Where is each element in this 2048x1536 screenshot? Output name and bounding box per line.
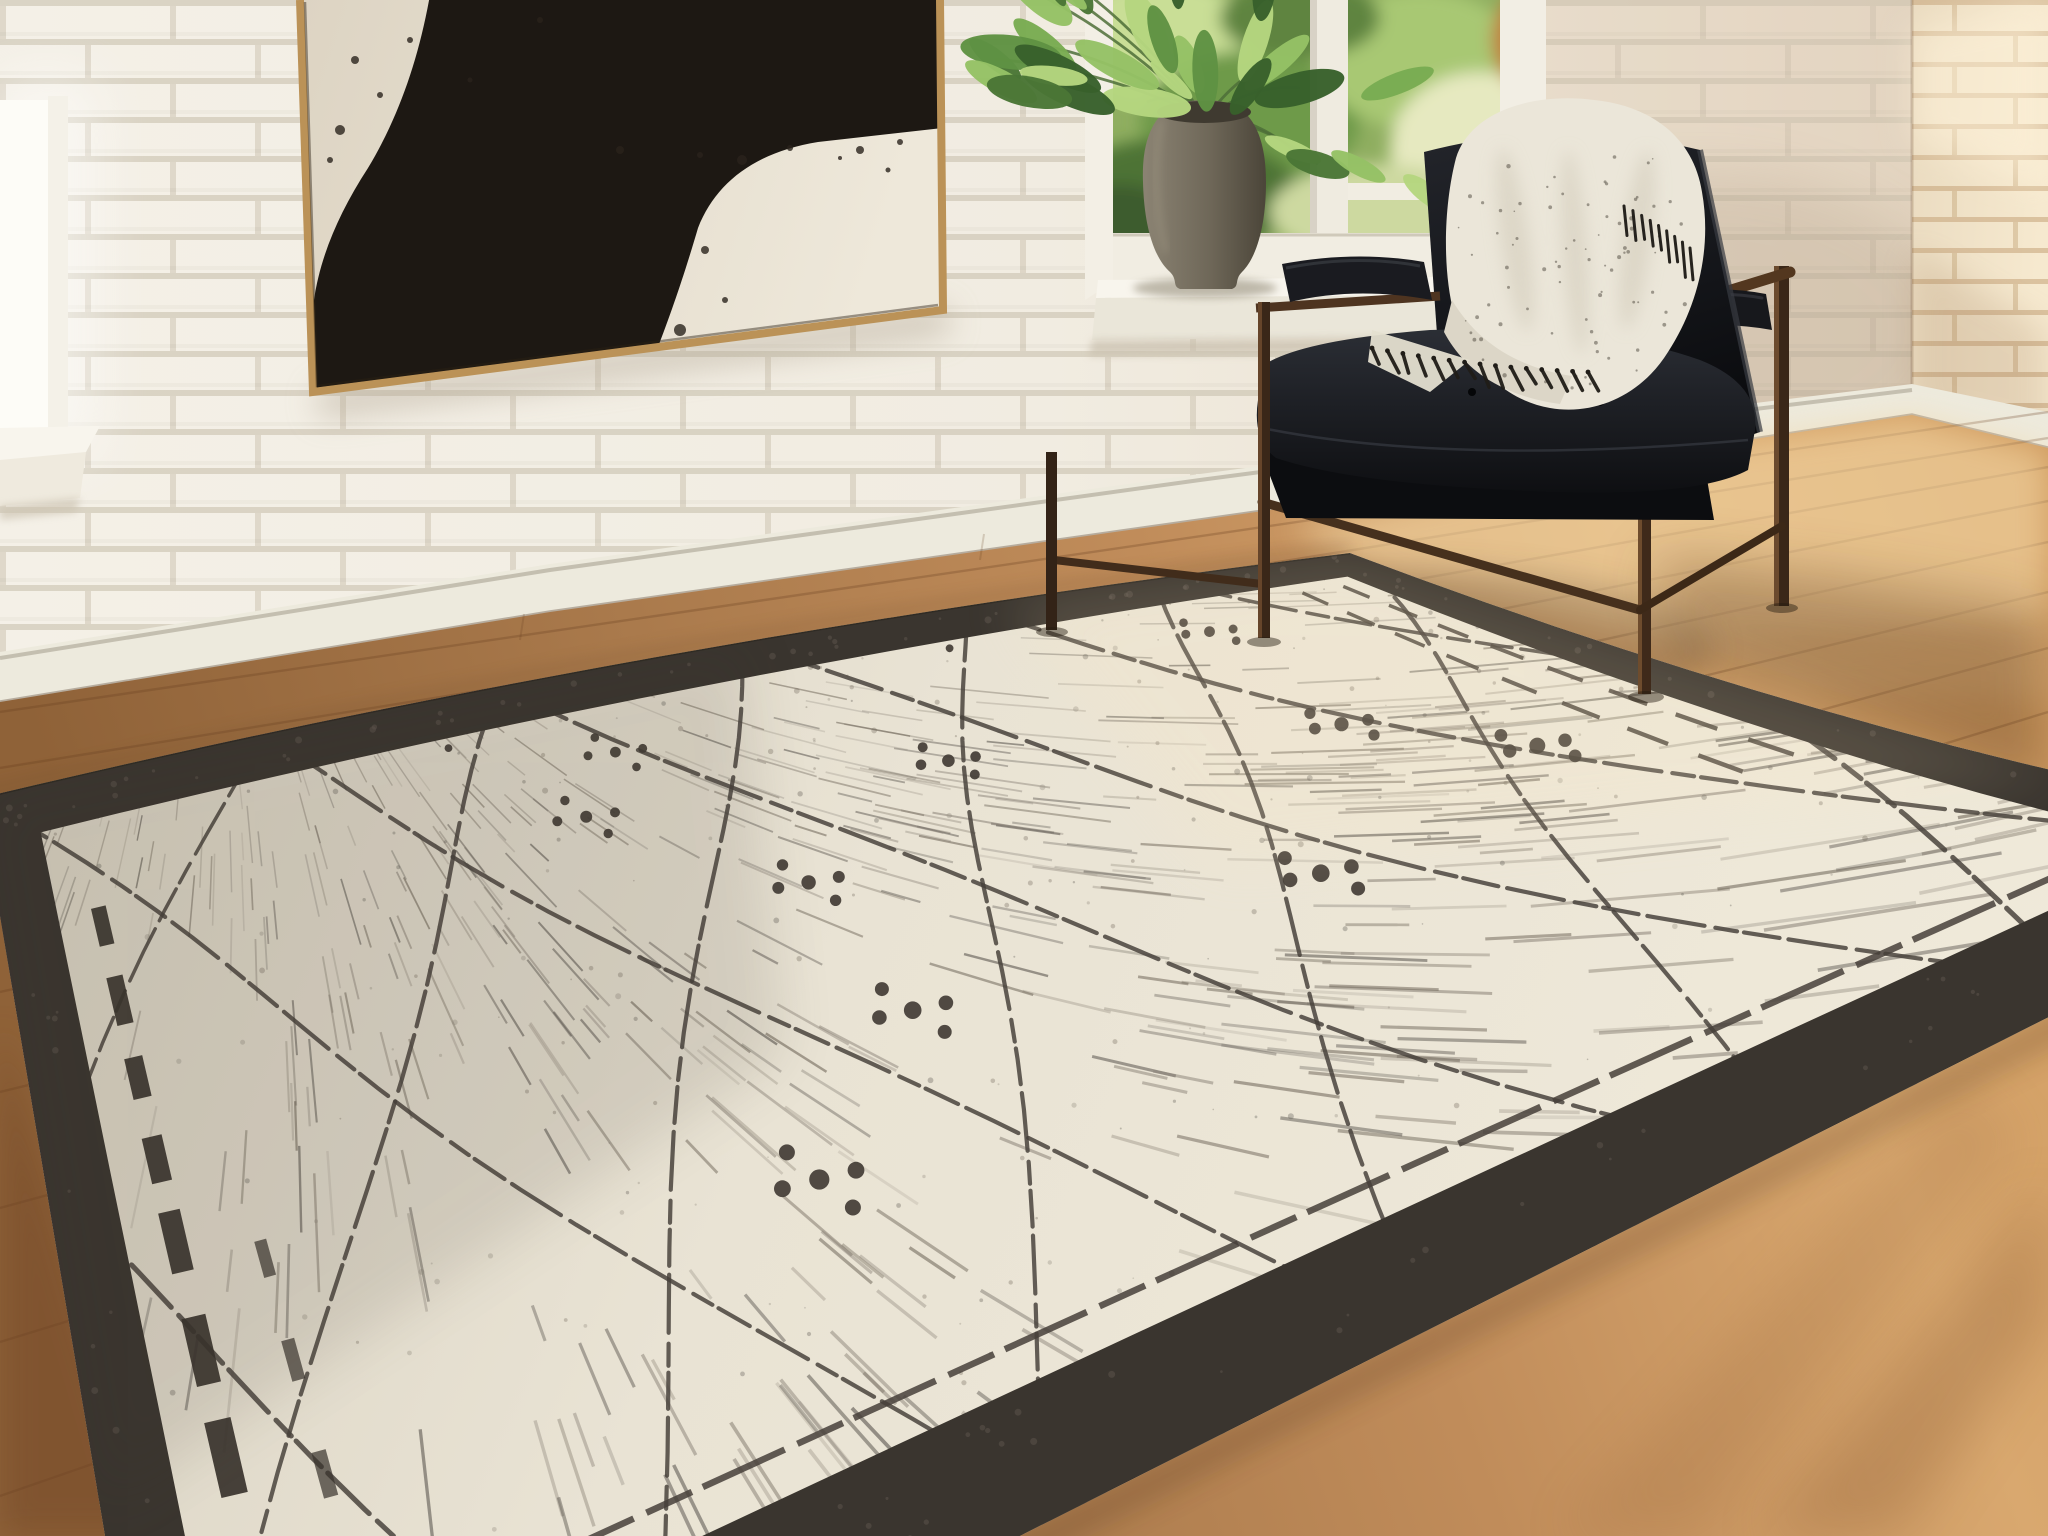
wall-art — [300, 0, 948, 404]
left-window-sill-face — [0, 452, 86, 506]
right-wall — [1912, 0, 2048, 450]
chair-leg-front-left — [1046, 452, 1057, 630]
left-window-frame — [48, 96, 68, 432]
living-room-photo — [0, 0, 2048, 1536]
